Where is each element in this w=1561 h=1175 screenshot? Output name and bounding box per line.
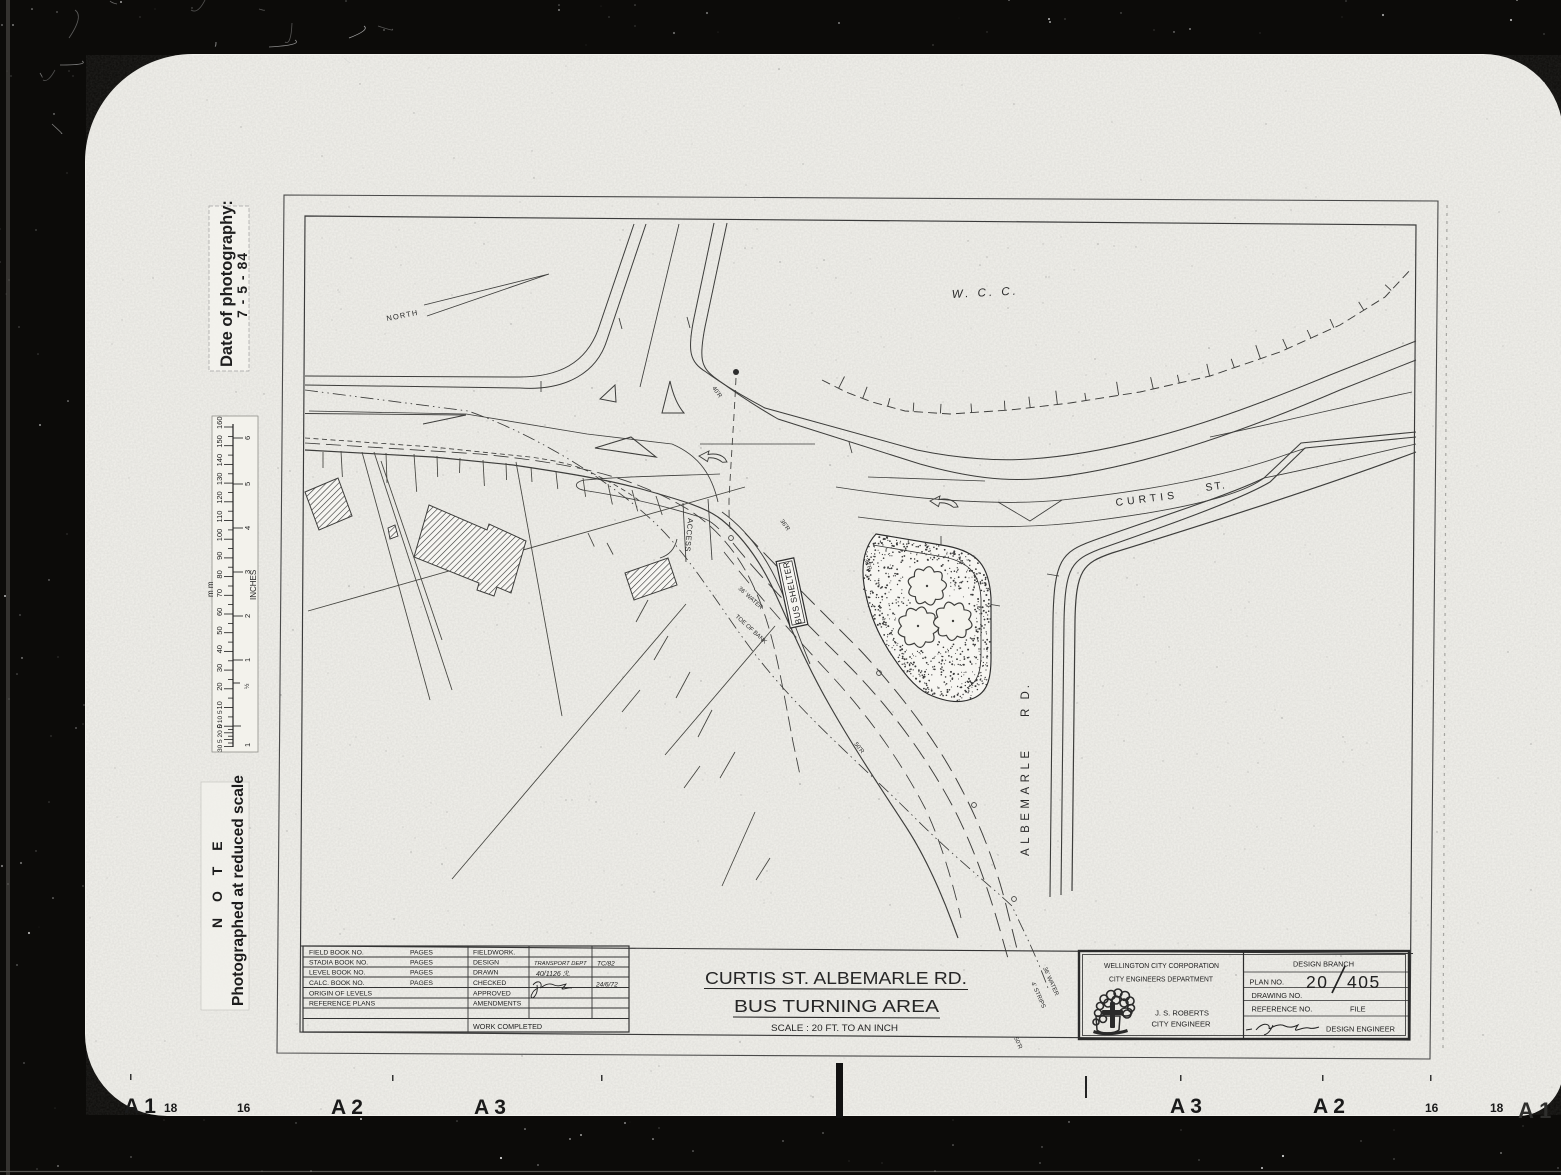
svg-text:R D.: R D.	[1020, 682, 1032, 717]
svg-text:SCALE : 20 FT. TO AN INCH: SCALE : 20 FT. TO AN INCH	[771, 1023, 898, 1033]
svg-text:40/1126 ℛ.: 40/1126 ℛ.	[536, 970, 570, 978]
svg-text:DESIGN ENGINEER: DESIGN ENGINEER	[1326, 1025, 1395, 1034]
svg-text:A 3: A 3	[474, 1096, 506, 1119]
svg-text:A 2: A 2	[1313, 1095, 1345, 1118]
svg-text:80: 80	[215, 570, 224, 578]
svg-text:INCHES: INCHES	[249, 570, 258, 600]
svg-text:N O T E: N O T E	[209, 835, 225, 928]
svg-text:20: 20	[215, 682, 224, 690]
svg-text:30: 30	[215, 664, 224, 672]
svg-text:CHECKED: CHECKED	[473, 980, 506, 987]
svg-text:100: 100	[215, 529, 224, 542]
svg-text:AMENDMENTS: AMENDMENTS	[473, 1001, 522, 1008]
svg-text:STADIA BOOK NO.: STADIA BOOK NO.	[309, 960, 368, 967]
svg-text:LEVEL BOOK NO.: LEVEL BOOK NO.	[309, 970, 366, 977]
svg-text:18: 18	[164, 1101, 178, 1115]
svg-text:FIELDWORK.: FIELDWORK.	[473, 950, 515, 957]
svg-text:A 1: A 1	[1518, 1098, 1551, 1123]
svg-text:PAGES: PAGES	[410, 970, 433, 977]
svg-text:6: 6	[243, 436, 252, 440]
svg-text:CALC. BOOK NO.: CALC. BOOK NO.	[309, 980, 365, 987]
svg-text:TC/82: TC/82	[597, 961, 615, 968]
svg-text:140: 140	[215, 454, 224, 467]
svg-text:24/6/72: 24/6/72	[595, 982, 618, 989]
svg-text:20: 20	[1306, 972, 1328, 992]
svg-text:½: ½	[243, 683, 251, 689]
svg-text:ALBEMARLE: ALBEMARLE	[1020, 746, 1032, 856]
svg-text:CITY ENGINEERS DEPARTMENT: CITY ENGINEERS DEPARTMENT	[1109, 975, 1213, 984]
svg-text:10: 10	[215, 701, 224, 709]
svg-text:DESIGN: DESIGN	[473, 960, 499, 967]
svg-text:PAGES: PAGES	[410, 960, 433, 967]
svg-text:50: 50	[215, 626, 224, 634]
svg-text:DRAWING NO.: DRAWING NO.	[1252, 991, 1303, 1000]
svg-text:1: 1	[243, 743, 252, 747]
svg-text:4: 4	[243, 526, 252, 530]
svg-text:60: 60	[215, 608, 224, 616]
svg-text:130: 130	[215, 473, 224, 486]
svg-text:CITY ENGINEER: CITY ENGINEER	[1151, 1020, 1211, 1029]
svg-text:16: 16	[237, 1101, 251, 1115]
svg-text:WELLINGTON CITY CORPORATION: WELLINGTON CITY CORPORATION	[1104, 961, 1219, 970]
svg-text:REFERENCE NO.: REFERENCE NO.	[1252, 1005, 1313, 1014]
svg-text:40: 40	[215, 645, 224, 653]
svg-text:WORK COMPLETED: WORK COMPLETED	[473, 1022, 542, 1031]
svg-text:5: 5	[243, 482, 252, 486]
svg-text:FILE: FILE	[1350, 1005, 1366, 1014]
svg-text:16: 16	[1425, 1101, 1439, 1115]
svg-text:Photographed at reduced scale: Photographed at reduced scale	[230, 775, 247, 1006]
svg-text:2: 2	[243, 614, 252, 618]
svg-text:FIELD BOOK NO.: FIELD BOOK NO.	[309, 950, 364, 957]
svg-text:160: 160	[215, 416, 224, 429]
svg-text:DRAWN: DRAWN	[473, 970, 499, 977]
svg-text:BUS TURNING AREA: BUS TURNING AREA	[734, 996, 939, 1016]
svg-text:18: 18	[1490, 1101, 1504, 1115]
svg-text:30 5 20 5 10 5: 30 5 20 5 10 5	[217, 710, 224, 752]
svg-text:7 - 5 - 84: 7 - 5 - 84	[234, 252, 250, 318]
svg-text:PLAN NO.: PLAN NO.	[1250, 978, 1285, 987]
svg-text:A 3: A 3	[1170, 1095, 1202, 1118]
svg-text:90: 90	[215, 552, 224, 560]
svg-text:J. S. ROBERTS: J. S. ROBERTS	[1155, 1009, 1209, 1018]
svg-text:1: 1	[243, 658, 252, 662]
svg-text:TRANSPORT DEPT: TRANSPORT DEPT	[534, 961, 587, 967]
svg-text:110: 110	[215, 511, 224, 523]
svg-text:70: 70	[215, 589, 224, 597]
svg-text:REFERENCE PLANS: REFERENCE PLANS	[309, 1001, 376, 1008]
svg-text:150: 150	[215, 435, 224, 448]
svg-text:APPROVED: APPROVED	[473, 991, 511, 998]
svg-text:ORIGIN OF LEVELS: ORIGIN OF LEVELS	[309, 991, 373, 998]
svg-text:m m: m m	[206, 581, 215, 597]
svg-text:405: 405	[1347, 972, 1381, 992]
svg-text:A 2: A 2	[331, 1096, 363, 1119]
svg-text:120: 120	[215, 491, 224, 504]
svg-text:CURTIS ST. ALBEMARLE RD.: CURTIS ST. ALBEMARLE RD.	[705, 968, 967, 988]
svg-text:PAGES: PAGES	[410, 950, 433, 957]
svg-text:PAGES: PAGES	[410, 980, 433, 987]
svg-text:A 1: A 1	[124, 1095, 156, 1118]
